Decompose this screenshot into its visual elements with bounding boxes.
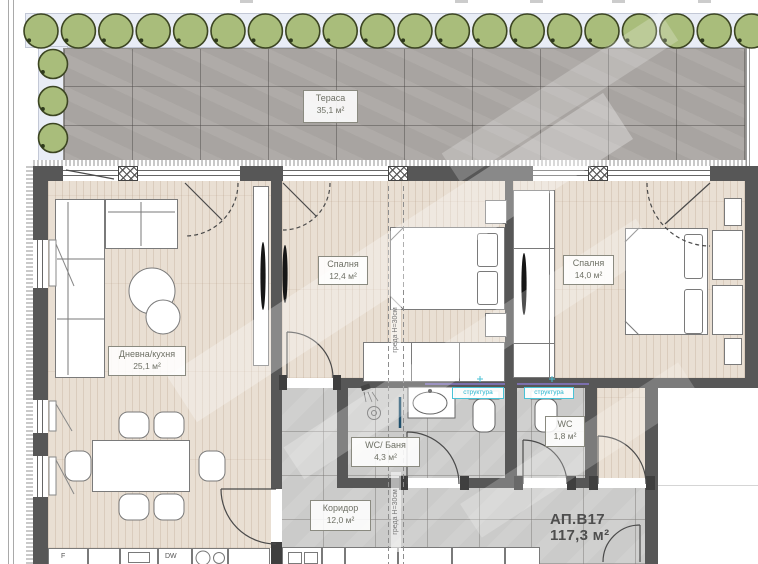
dining-table [92,440,190,492]
tree-strip-top [25,13,758,48]
wall-bedrooms-corridor [271,378,758,388]
kitchen-dishwasher: DW [158,548,192,564]
wall-bathroom-left [337,388,348,486]
oven-icon [128,552,150,563]
door-jamb [279,375,287,390]
nightstand [712,285,743,335]
room-area: 35,1 м² [306,105,355,116]
structure-line [517,383,589,385]
wardrobe-divider [514,343,554,344]
wall-stub-entry [271,542,282,564]
terrace-parapet [746,48,750,166]
apartment-label: АП.В17 117,3 м² [550,512,609,544]
nightstand [485,200,507,224]
cabinet-box [304,552,318,564]
nightstand [485,313,507,337]
column-hatch [388,166,408,181]
door-jamb [514,476,523,490]
kitchen-cabinet [228,548,270,564]
hall-cabinet [282,547,322,564]
door-opening-bathroom [407,478,461,488]
insulation-strip-left [26,166,33,564]
door-opening-living-corridor [271,489,282,542]
wall-right-lower [645,378,658,564]
door-opening-wc [523,478,568,488]
structure-label: структура [524,387,574,399]
closet-floor [597,386,645,486]
door-jamb [460,476,469,490]
plot-boundary-line [8,0,9,564]
wardrobe-bedroom2 [513,190,555,378]
wardrobe-bedroom1 [363,342,505,382]
window-bedroom1 [330,166,388,181]
terrace-door-bedroom1-opening [283,166,330,181]
kitchen-cabinet [88,548,120,564]
wardrobe-divider [459,343,460,381]
room-area: 14,0 м² [566,270,611,281]
kitchen-cabinet-fridge: F [48,548,88,564]
tv-cabinet [253,186,269,366]
window-living-2 [138,166,185,181]
door-jamb [567,476,576,490]
apartment-id: АП.В17 [550,512,609,528]
door-opening-bedroom1 [287,378,333,388]
room-label-bathroom: WC/ Баня 4,3 м² [351,437,420,467]
sofa-chaise [105,199,178,249]
window-bedroom2-1 [533,166,588,181]
room-name: WC [548,419,582,431]
exterior-area [658,388,758,564]
structure-line [425,383,505,385]
kitchen-oven [120,548,158,564]
room-name: Дневна/кухня [111,349,183,361]
door-opening-closet [598,478,647,488]
beam-annotation: греда Н=30см [391,290,401,370]
pillow [684,289,703,334]
structure-label: структура [452,387,504,399]
door-jamb [333,375,341,390]
sofa-body [55,199,105,378]
wall-wc-closet [585,388,597,486]
hall-cabinet [322,547,345,564]
dimension-tick [455,0,468,3]
room-name: Спалня [321,259,365,271]
wardrobe-divider [514,248,554,249]
column-hatch [118,166,138,181]
dimension-tick [698,0,711,3]
hall-cabinet [505,547,540,564]
terrace-door-living-opening [185,166,240,181]
room-area: 1,8 м² [548,431,582,442]
room-label-corridor: Коридор 12,0 м² [310,500,371,531]
plot-boundary-line [13,0,14,564]
wardrobe-front-line [549,191,550,377]
window-living-left-1 [33,240,48,288]
nightstand [712,230,743,280]
wardrobe-divider [411,343,412,381]
room-label-bedroom2: Спалня 14,0 м² [563,255,614,285]
floor-plan: F DW [0,0,758,564]
room-name: Коридор [313,503,368,515]
pillow [684,234,703,279]
room-area: 12,0 м² [313,515,368,526]
wall-living-bedroom1 [271,181,282,489]
room-area: 4,3 м² [354,452,417,463]
room-area: 12,4 м² [321,271,365,282]
room-name: Тераса [306,93,355,105]
fridge-label: F [61,552,65,562]
beam-annotation: греда Н=30см [391,472,401,552]
dishwasher-label: DW [165,552,177,562]
room-label-bedroom1: Спалня 12,4 м² [318,256,368,285]
terrace-floor [63,48,746,166]
kitchen-sink-cabinet [192,548,228,564]
neighbor-wall-line [658,485,758,486]
pillow [477,233,498,267]
pillow [477,271,498,305]
room-name: WC/ Баня [354,440,417,452]
dimension-tick [240,0,253,3]
apartment-area: 117,3 м² [550,528,609,544]
room-area: 25,1 м² [111,361,183,372]
bench [724,338,742,365]
window-living-1 [63,166,118,181]
wall-left [33,166,48,564]
door-jamb [589,476,598,490]
wall-right [745,166,758,387]
window-living-left-3 [33,456,48,497]
shelf [724,198,742,226]
window-living-left-2 [33,400,48,433]
column-hatch [588,166,608,181]
hall-cabinet [398,547,452,564]
cabinet-box [288,552,302,564]
dimension-tick [530,0,543,3]
room-name: Спалня [566,258,611,270]
room-label-terrace: Тераса 35,1 м² [303,90,358,123]
wall-bathroom-wc [505,388,517,486]
room-label-wc: WC 1,8 м² [545,416,585,447]
window-bedroom2-2 [608,166,645,181]
hall-cabinet [452,547,505,564]
door-jamb [646,476,655,490]
terrace-door-bedroom2-opening [645,166,710,181]
dimension-tick [612,0,625,3]
room-label-living: Дневна/кухня 25,1 м² [108,346,186,376]
